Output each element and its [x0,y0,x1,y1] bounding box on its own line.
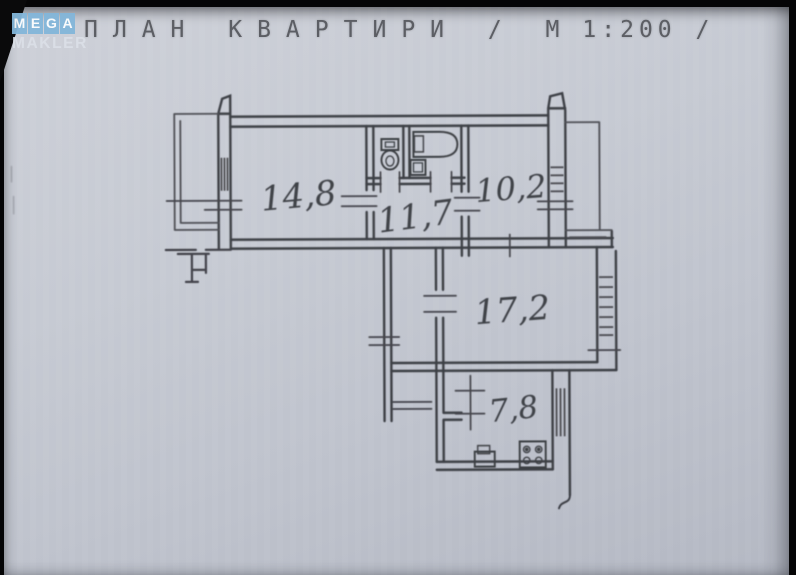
kitchen-sink-fixture [475,446,495,467]
entrance-door [392,402,431,409]
plan-title: ПЛАН КВАРТИРИ / М1:200 / [84,17,714,43]
room-area-label: 14,8 [259,173,338,220]
door-kitchen [455,376,484,430]
logo-tiles: M E G A [12,13,88,34]
floorplan-drawing: 14,8 11,7 10,2 17,2 7,8 [0,0,796,575]
plan-title-words: ПЛАН КВАРТИРИ / М [84,17,574,43]
door-room-17-2 [424,296,456,312]
window-kitchen [556,388,564,436]
window-room-14-8 [221,158,227,191]
logo-tile: E [28,13,43,34]
walls-group [218,93,617,510]
door-room-14-8 [342,196,377,206]
logo-tile: G [44,13,59,34]
bath-sink-fixture [410,160,425,175]
room-area-label: 11,7 [375,192,456,241]
window-room-10-2 [550,167,563,191]
door-wc [380,172,399,192]
logo-subtitle: MAKLER [12,35,88,53]
door-bathroom [430,172,451,192]
room-labels-group: 14,8 11,7 10,2 17,2 7,8 [259,167,552,431]
stove-fixture [520,441,546,467]
scanned-floorplan-photo: 14,8 11,7 10,2 17,2 7,8 M E G A MAKLER П… [0,0,796,575]
toilet-fixture [381,139,398,170]
room-area-label: 7,8 [487,389,540,430]
bathtub-fixture [413,132,457,157]
logo-tile: A [60,13,75,34]
megamakler-logo: M E G A MAKLER [12,13,88,53]
room-area-label: 17,2 [473,288,551,334]
window-room-17-2 [599,277,613,335]
logo-tile: M [12,13,27,34]
room-area-label: 10,2 [474,167,548,210]
plan-title-scale: 1:200 / [582,17,714,43]
